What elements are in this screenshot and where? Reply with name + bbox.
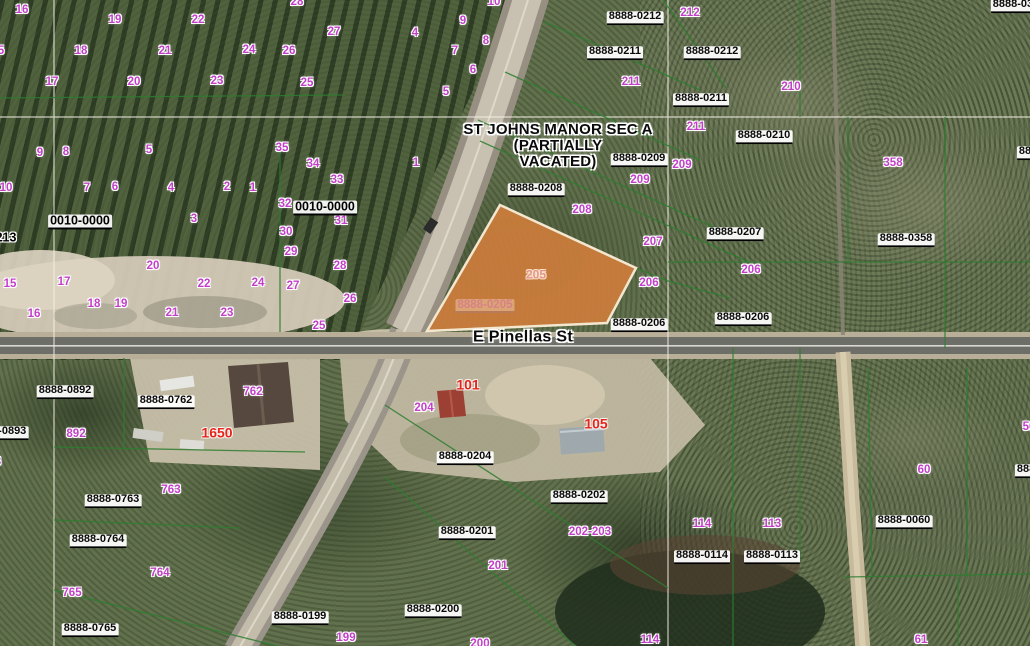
- highlighted-parcel-id-label: 8888-0205: [456, 299, 515, 313]
- lot-number-label: 206: [639, 277, 658, 289]
- parcel-id-label: 8888-0060: [876, 515, 933, 529]
- lot-number-label: 26: [283, 45, 296, 57]
- lot-number-label: 27: [287, 280, 300, 292]
- parcel-map: 1619222827518212426172023254910876512122…: [0, 0, 1030, 646]
- lot-number-label: 23: [211, 75, 224, 87]
- truck-trailer: [180, 439, 205, 450]
- lot-number-label: 32: [279, 198, 292, 210]
- lot-number-label: 26: [344, 293, 357, 305]
- lot-number-label: 763: [161, 484, 180, 496]
- lot-number-label: 56: [1023, 421, 1030, 433]
- lot-number-label: 113: [763, 518, 782, 530]
- parcel-id-label: 8888-0200: [405, 604, 462, 618]
- lot-number-label: 207: [643, 236, 662, 248]
- lot-number-label: 204: [414, 402, 433, 414]
- parcel-id-label: 8888-0202: [551, 490, 608, 504]
- lot-number-label: 21: [159, 45, 172, 57]
- lot-number-label: 114: [641, 634, 660, 646]
- lot-number-label: 15: [4, 278, 17, 290]
- lot-number-label: 20: [128, 76, 141, 88]
- lot-number-label: 30: [280, 226, 293, 238]
- lot-number-label: 25: [313, 320, 326, 332]
- parcel-id-label: 8888-0114: [674, 550, 730, 564]
- parcel-id-label: 8888-0765: [62, 623, 119, 637]
- lot-number-label: 10: [488, 0, 501, 8]
- lot-number-label: 200: [470, 638, 489, 646]
- lot-number-label: 6: [470, 64, 476, 76]
- lot-number-label: 24: [243, 44, 256, 56]
- parcel-id-label: 8888-035: [991, 0, 1030, 13]
- lot-number-label: 3: [0, 456, 1, 468]
- parcel-id-label: 8888-0: [1017, 146, 1030, 160]
- lot-number-label: 5: [0, 45, 4, 57]
- lot-number-label: 892: [66, 428, 85, 440]
- lot-number-label: 22: [192, 14, 205, 26]
- map-graphics: [0, 0, 1030, 646]
- parcel-id-label: 8888-0207: [707, 227, 764, 241]
- lot-number-label: 24: [252, 277, 265, 289]
- parcel-id-label: 8888-0892: [37, 385, 94, 399]
- lot-number-label: 19: [115, 298, 128, 310]
- lot-number-label: 8: [63, 146, 69, 158]
- lot-number-label: 202-203: [569, 526, 611, 538]
- parcel-id-label: 8888-0210: [736, 130, 793, 144]
- lot-number-label: 206: [741, 264, 760, 276]
- lot-number-label: 33: [331, 174, 344, 186]
- lot-number-label: 23: [221, 307, 234, 319]
- lot-number-label: 199: [336, 632, 355, 644]
- lot-number-label: 17: [46, 76, 59, 88]
- address-label: 101: [456, 378, 479, 393]
- parcel-id-label: 8888-0212: [684, 46, 741, 60]
- parcel-id-label: 8888-0211: [587, 46, 643, 60]
- lot-number-label: 201: [488, 560, 507, 572]
- lot-number-label: 9: [37, 147, 43, 159]
- lot-number-label: 4: [168, 182, 174, 194]
- lot-number-label: 765: [62, 587, 81, 599]
- parcel-id-label: 8888-0764: [70, 534, 127, 548]
- lot-number-label: 27: [328, 26, 341, 38]
- lot-number-label: 16: [16, 4, 29, 16]
- lot-number-label: 114: [693, 518, 712, 530]
- lot-number-label: 3: [191, 213, 197, 225]
- lot-number-label: 18: [88, 298, 101, 310]
- parcel-id-label: 8888-0208: [508, 183, 565, 197]
- lot-number-label: 8: [483, 35, 489, 47]
- lot-number-label: 25: [301, 77, 314, 89]
- lot-number-label: 7: [452, 45, 458, 57]
- address-label: 1650: [201, 426, 232, 441]
- parcel-id-label: 8888-0358: [878, 233, 935, 247]
- plat-label: 0010-0000: [48, 214, 112, 229]
- subdivision-title: ST JOHNS MANOR SEC A (PARTIALLY VACATED): [463, 122, 652, 170]
- parcel-id-label: 8888-0201: [439, 526, 496, 540]
- lot-number-label: 9: [460, 15, 466, 27]
- parcel-id-label: 8888-0: [1015, 464, 1030, 478]
- lot-number-label: 34: [307, 158, 320, 170]
- lot-number-label: 16: [28, 308, 41, 320]
- parcel-id-label: 8888-0212: [607, 11, 664, 25]
- parcel-id-label: 8888-0199: [272, 611, 329, 625]
- lot-number-label: 28: [334, 260, 347, 272]
- parcel-id-label: 8888-0113: [744, 550, 800, 564]
- lot-number-label: 762: [243, 386, 262, 398]
- parcel-id-label: 8888-0762: [138, 395, 195, 409]
- parcel-id-label: 8888-0204: [437, 451, 494, 465]
- subdivision-title-line3: VACATED): [463, 154, 652, 170]
- plat-label: 0010-0000: [293, 200, 357, 215]
- lot-number-label: 31: [335, 215, 348, 227]
- lot-number-label: 210: [781, 81, 800, 93]
- lot-number-label: 208: [572, 204, 591, 216]
- lot-number-label: 17: [58, 276, 71, 288]
- street-name-label: E Pinellas St: [473, 330, 573, 347]
- lot-number-label: 35: [276, 142, 289, 154]
- lot-number-label: 10: [0, 182, 12, 194]
- lot-number-label: 764: [150, 567, 169, 579]
- parcel-id-label: 8888-0893: [0, 426, 28, 440]
- lot-number-label: 211: [622, 76, 641, 88]
- lot-number-label: 1: [413, 157, 419, 169]
- lot-number-label: 2: [224, 181, 230, 193]
- lot-number-label: 22: [198, 278, 211, 290]
- parcel-id-label: 8888-0211: [673, 93, 729, 107]
- parcel-id-label: 8888-0763: [85, 494, 142, 508]
- lot-number-label: 211: [687, 121, 706, 133]
- lot-number-label: 20: [147, 260, 160, 272]
- subdivision-title-line1: ST JOHNS MANOR SEC A: [463, 122, 652, 138]
- lot-number-label: 19: [109, 14, 122, 26]
- lot-number-label: 6: [112, 181, 118, 193]
- parcel-id-label: 8888-0206: [715, 312, 772, 326]
- lot-number-label: 60: [918, 464, 931, 476]
- lot-number-label: 212: [680, 7, 699, 19]
- subdivision-title-line2: (PARTIALLY: [463, 138, 652, 154]
- lot-number-label: 5: [443, 86, 449, 98]
- lot-number-label: 21: [166, 307, 179, 319]
- lot-number-label: 5: [146, 144, 152, 156]
- lot-number-label: 18: [75, 45, 88, 57]
- lot-number-label: 61: [915, 634, 928, 646]
- lot-number-label: 1: [250, 182, 256, 194]
- lot-number-label: 209: [672, 159, 691, 171]
- highlighted-parcel-lot-label: 205: [526, 269, 546, 282]
- dirt-trail-road: [833, 0, 863, 646]
- parcel-id-label: 8888-0206: [611, 318, 668, 332]
- lot-number-label: 28: [291, 0, 304, 8]
- lot-number-label: 7: [84, 182, 90, 194]
- lot-number-label: 29: [285, 246, 298, 258]
- lot-number-label: 209: [630, 174, 649, 186]
- lot-number-label: 4: [412, 27, 418, 39]
- lot-number-label: 358: [883, 157, 902, 169]
- plat-label: 213: [0, 231, 16, 244]
- address-label: 105: [584, 417, 607, 432]
